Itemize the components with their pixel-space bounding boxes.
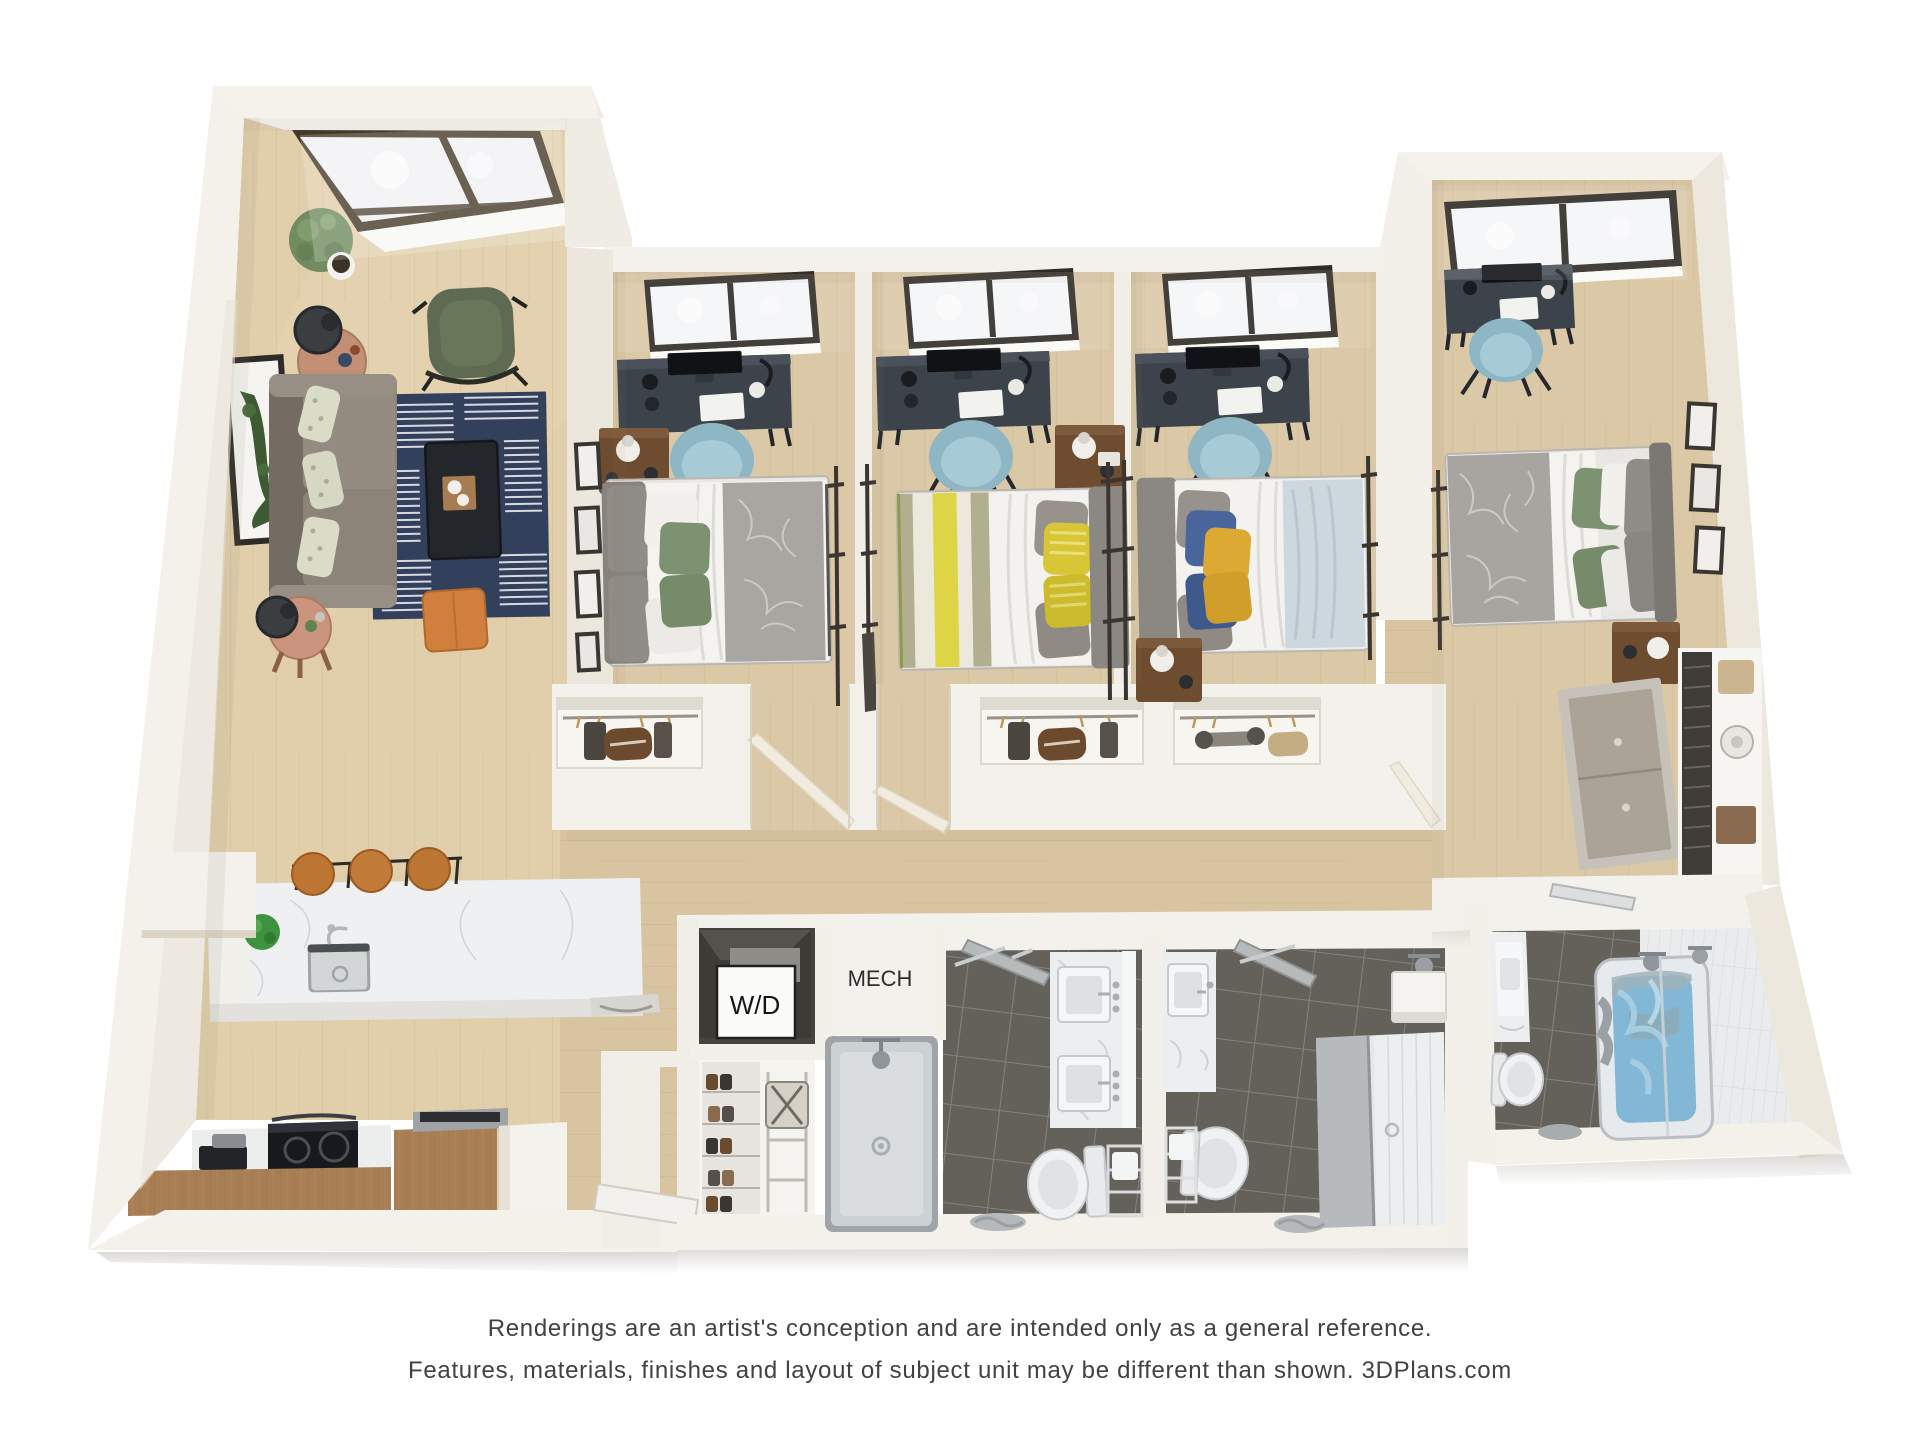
svg-text:MECH: MECH — [848, 966, 913, 991]
svg-text:Renderings are an artist's con: Renderings are an artist's conception an… — [488, 1315, 1433, 1342]
svg-text:W/D: W/D — [730, 990, 781, 1020]
svg-text:Features, materials, finishes: Features, materials, finishes and layout… — [408, 1357, 1512, 1384]
